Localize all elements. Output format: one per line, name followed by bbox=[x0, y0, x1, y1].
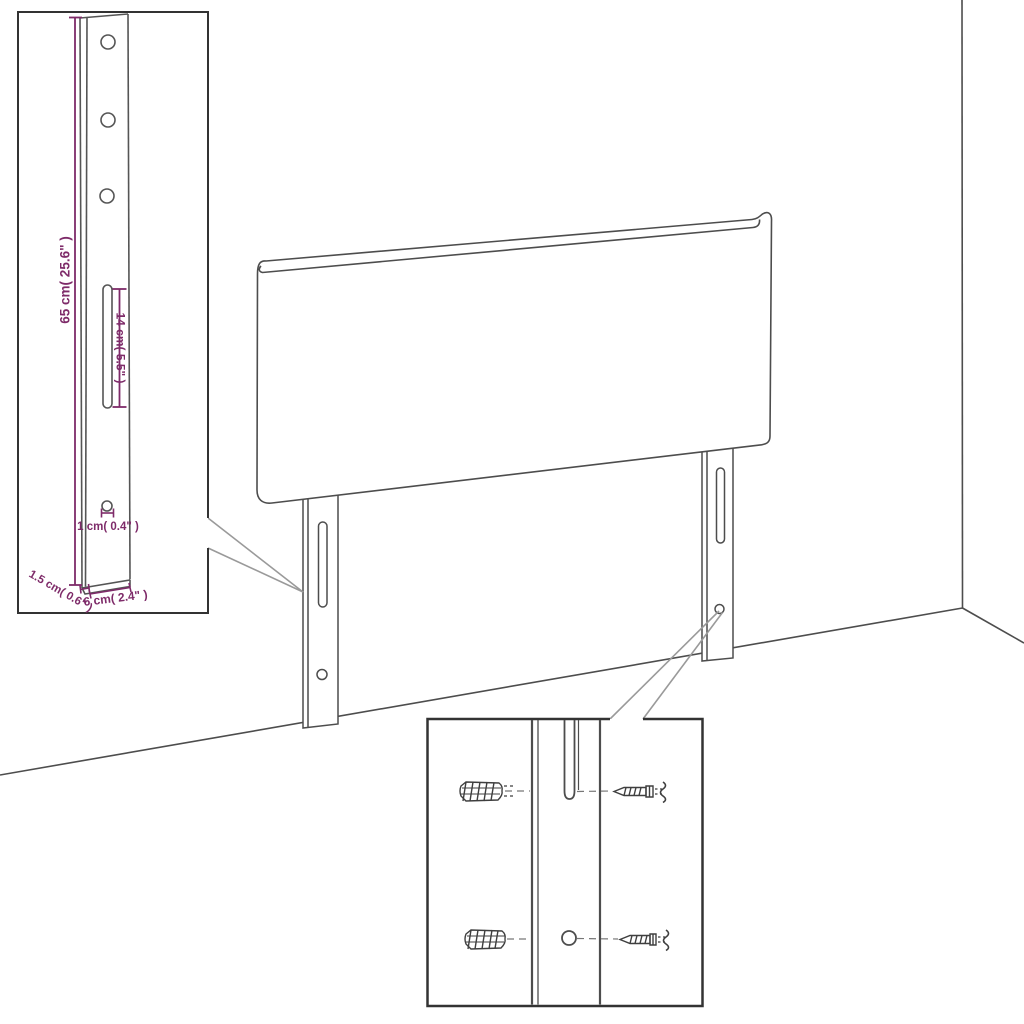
dimension-height-label: 65 cm( 25.6" ) bbox=[58, 236, 73, 323]
diagram-svg: 65 cm( 25.6" ) 14 cm( 5.5" ) 1 cm( 0.4" … bbox=[0, 0, 1024, 1024]
right-leg-slot bbox=[717, 468, 725, 543]
headboard-panel bbox=[257, 213, 772, 504]
headboard-panel-outline bbox=[257, 213, 772, 504]
wall-corner-vertical-line bbox=[962, 0, 963, 608]
floor-line-right bbox=[963, 608, 1024, 643]
left-leg-slot bbox=[319, 522, 328, 607]
right-leg-hole bbox=[715, 605, 724, 614]
dashed-line-slot-to-screw-top bbox=[577, 791, 612, 792]
dimension-hole-label: 1 cm( 0.4" ) bbox=[77, 521, 139, 533]
mounting-detail-inset bbox=[428, 611, 723, 1006]
right-leg bbox=[702, 445, 733, 661]
dimension-slot-label: 14 cm( 5.5" ) bbox=[114, 312, 128, 383]
headboard-dimension-diagram: 65 cm( 25.6" ) 14 cm( 5.5" ) 1 cm( 0.4" … bbox=[0, 0, 1024, 1024]
leg-detail-callout-lines bbox=[208, 518, 303, 592]
left-leg-hole bbox=[317, 670, 327, 680]
left-leg bbox=[303, 494, 338, 728]
